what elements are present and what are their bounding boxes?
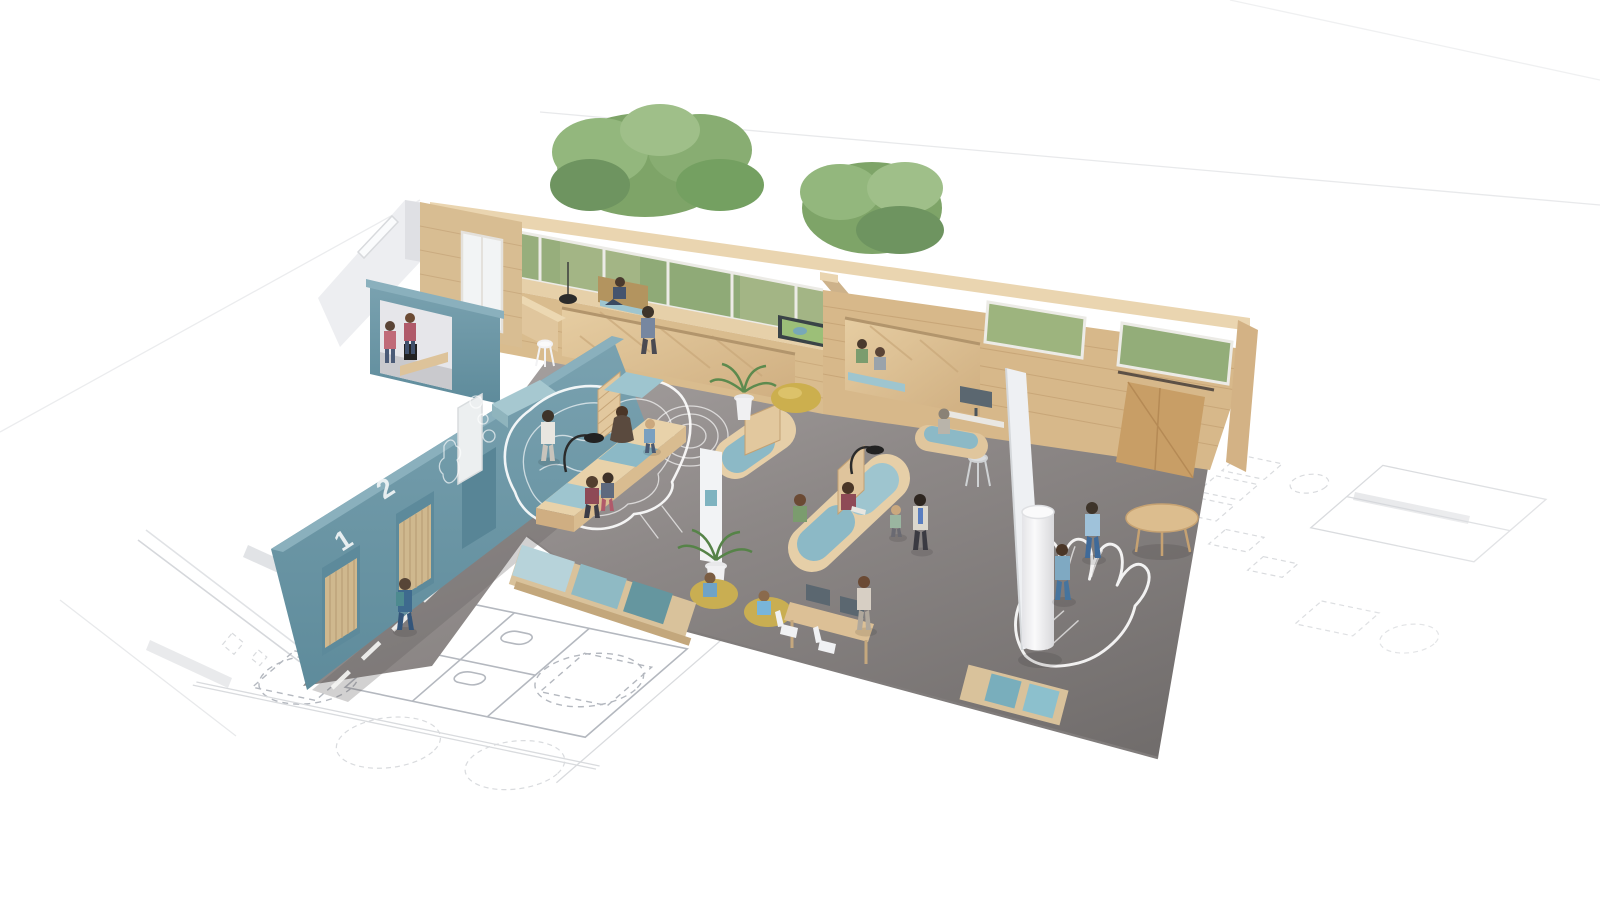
bench-cushion-dark <box>628 596 668 609</box>
scene-canvas: 1 2 <box>0 0 1600 900</box>
blueprint-diamond <box>251 650 266 665</box>
tie <box>918 508 923 524</box>
partition-cap <box>820 272 838 283</box>
blueprint-shade-bar <box>146 640 232 688</box>
arc-lamp-shade <box>584 433 604 443</box>
person-step-sitter <box>856 339 868 363</box>
pouf-highlight <box>778 387 802 399</box>
tree-left <box>550 104 764 217</box>
pillar-sign <box>705 490 717 506</box>
small-bench <box>964 682 1064 708</box>
person-pod-sitter-green <box>793 494 807 522</box>
bench-cushion-mid <box>576 579 622 594</box>
blueprint-diamond <box>222 633 243 654</box>
person-step-sitter <box>874 347 886 370</box>
arc-lamp-shade <box>866 446 884 455</box>
architectural-rendering: 1 2 <box>0 0 1600 900</box>
entrance-lobby <box>318 200 522 404</box>
blueprint-line <box>1230 0 1600 80</box>
bench-cushion-light <box>517 560 570 577</box>
round-bench <box>928 434 975 446</box>
tree-right <box>800 162 944 254</box>
map-water <box>793 327 807 335</box>
person-right-room-sitter <box>938 409 950 435</box>
